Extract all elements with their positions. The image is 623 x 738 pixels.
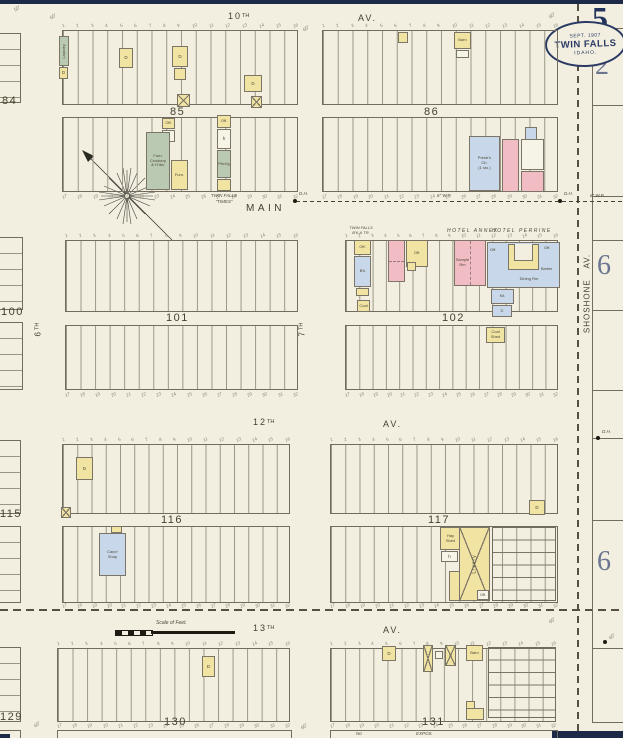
water-pipe-label: 6" W.P. xyxy=(590,193,604,199)
lot-number: 19 xyxy=(372,391,379,398)
lot-number: 23 xyxy=(153,193,160,200)
lot-number: 7 xyxy=(421,233,426,239)
lot-number: 9 xyxy=(436,23,441,29)
lot-number: 23 xyxy=(155,391,162,398)
lot-number: 25 xyxy=(186,391,193,398)
lot-number: 25 xyxy=(180,602,187,609)
lot-number: 17 xyxy=(56,722,63,729)
outbuilding xyxy=(356,288,369,296)
house-building: h xyxy=(217,129,231,149)
lot-number: 15 xyxy=(267,640,274,647)
hotel-annex-label: HOTEL ANNEX xyxy=(447,228,499,234)
lot-number: 29 xyxy=(506,193,513,200)
lot-number: 9 xyxy=(172,437,177,443)
block-115-partial-north xyxy=(0,440,21,514)
lot-number: 7 xyxy=(411,641,416,647)
barn-building: Barn xyxy=(466,645,483,661)
lot-number: 21 xyxy=(125,391,132,398)
block-partial-strip xyxy=(330,730,558,738)
dwelling-building: D xyxy=(119,48,133,68)
lot-number: 21 xyxy=(121,602,128,609)
block-100-label: 100 xyxy=(1,306,24,318)
sanborn-map-sheet: 5 2 6 6 SEPT. 1907 TWIN FALLS IDAHO. 10T… xyxy=(0,0,623,738)
lot-number: 25 xyxy=(448,602,455,609)
block-102-south xyxy=(345,325,558,390)
office-label: Off. xyxy=(544,246,550,251)
lot-number: 14 xyxy=(251,640,258,647)
carpenter-shop-building: Carp'r Shop xyxy=(99,533,126,576)
lot-number: 30 xyxy=(254,602,261,609)
lot-number: 19 xyxy=(91,602,98,609)
lot-number: 6 xyxy=(135,233,140,239)
office-label: Off. xyxy=(490,248,496,253)
lot-number: 14 xyxy=(519,436,526,443)
lot-number: 6 xyxy=(398,641,403,647)
street-12th-av: AV. xyxy=(383,419,402,429)
lot-number: 18 xyxy=(76,602,83,609)
street-6th: 6TH xyxy=(34,309,43,337)
lot-number: 25 xyxy=(455,391,462,398)
lot-number: 18 xyxy=(358,391,365,398)
lot-number: 14 xyxy=(518,22,525,29)
block-102-label: 102 xyxy=(442,312,465,324)
street-13th-av: AV. xyxy=(383,625,402,635)
hotel-light-court xyxy=(514,244,533,261)
lot-number: 27 xyxy=(216,391,223,398)
lot-number: 28 xyxy=(493,602,500,609)
lot-number: 17 xyxy=(321,193,328,200)
lot-number: 30 xyxy=(521,193,528,200)
outbuilding xyxy=(217,179,231,191)
lot-number: 2 xyxy=(335,23,340,29)
lot-number: 15 xyxy=(275,232,282,239)
lot-number: 24 xyxy=(165,602,172,609)
bank-building: B'k xyxy=(354,256,371,287)
lot-number: 19 xyxy=(92,193,99,200)
lot-number: 2 xyxy=(78,233,83,239)
lot-number: 5 xyxy=(121,233,126,239)
lot-number: 31 xyxy=(269,602,276,609)
lot-numbers-117n: 12345678910111213141516 xyxy=(330,437,558,442)
lot-number: 12 xyxy=(484,22,491,29)
lot-number: 21 xyxy=(123,193,130,200)
lot-number: 16 xyxy=(292,22,299,29)
lot-number: 18 xyxy=(337,193,344,200)
twin-falls-times-label: TWIN FALLS“TIMES” xyxy=(201,193,247,204)
lot-number: 15 xyxy=(534,640,541,647)
hydrant-label: D.H. xyxy=(564,191,573,197)
lot-number: 16 xyxy=(552,436,559,443)
lot-number: 5 xyxy=(116,437,121,443)
coal-shed: Coal Shed xyxy=(486,327,505,343)
lot-number: 1 xyxy=(61,437,66,443)
lot-number: 5 xyxy=(384,437,389,443)
lot-number: 31 xyxy=(537,602,544,609)
stall-rows-structure xyxy=(492,527,556,601)
lot-number: 32 xyxy=(552,602,559,609)
lot-number: 8 xyxy=(164,233,169,239)
lot-numbers-86n: 12345678910111213141516 xyxy=(322,23,558,28)
lot-number: 10 xyxy=(186,436,193,443)
outbuilding xyxy=(111,526,122,533)
presbyterian-church-building: Presb'n Ch. (1 sto.) xyxy=(469,136,500,191)
street-10th-av: AV. xyxy=(358,13,377,23)
dwelling-building: D xyxy=(59,67,68,79)
lot-number: 4 xyxy=(370,641,375,647)
lot-number: 16 xyxy=(292,232,299,239)
match-line-vertical xyxy=(577,4,579,734)
lot-number: 1 xyxy=(329,641,334,647)
brick-building xyxy=(502,139,519,192)
adjoining-block-edge xyxy=(592,28,593,723)
lot-number: 10 xyxy=(454,436,461,443)
dwelling-building: D xyxy=(202,656,215,677)
party-wall-line xyxy=(470,241,471,285)
lot-number: 20 xyxy=(102,722,109,729)
lot-number: 1 xyxy=(64,233,69,239)
sample-room-label: Sample Rm xyxy=(455,258,470,268)
lot-number: 6 xyxy=(133,23,138,29)
barn-building: Barn xyxy=(454,32,471,49)
hotel-annex-building: Sample Rm xyxy=(454,240,486,286)
lot-numbers-116s: 17181920212223242526272829303132 xyxy=(62,603,290,608)
lot-number: 13 xyxy=(501,22,508,29)
label-line: TWIN FALLS xyxy=(211,193,237,198)
lot-numbers-131s: 17181920212223242526272829303132 xyxy=(330,723,556,728)
lot-number: 3 xyxy=(84,641,89,647)
adjoining-block-stub xyxy=(592,390,623,391)
lot-number: 19 xyxy=(352,193,359,200)
lot-number: 17 xyxy=(64,391,71,398)
stamp-state: IDAHO. xyxy=(574,49,597,56)
dim-label: 60' xyxy=(33,721,42,730)
lot-number: 7 xyxy=(144,437,149,443)
match-line-horizontal xyxy=(0,609,623,611)
outbuilding xyxy=(466,708,484,720)
lot-number: 11 xyxy=(208,22,214,29)
lot-numbers-85s: 17181920212223242526272829303132 xyxy=(62,194,298,199)
lot-number: 27 xyxy=(210,602,217,609)
building-label: Laundry xyxy=(62,44,67,58)
lot-number: 19 xyxy=(94,391,101,398)
lot-number: 3 xyxy=(90,23,95,29)
lot-number: 26 xyxy=(201,391,208,398)
lot-number: 28 xyxy=(491,722,498,729)
lot-number: 5 xyxy=(119,23,124,29)
block-129-label: 129 xyxy=(0,711,23,723)
lot-number: 24 xyxy=(169,193,176,200)
lot-number: 10 xyxy=(184,640,191,647)
lot-number: 12 xyxy=(218,436,225,443)
dim-label: 60' xyxy=(300,723,309,732)
lot-number: 29 xyxy=(507,602,514,609)
lot-number: 18 xyxy=(79,391,86,398)
dwelling-building: D xyxy=(382,646,396,661)
lot-number: 4 xyxy=(103,437,108,443)
lot-number: 13 xyxy=(242,232,249,239)
lot-number: 17 xyxy=(61,602,68,609)
lot-number: 18 xyxy=(71,722,78,729)
block-101-north xyxy=(65,240,298,312)
adjoining-block-stub xyxy=(592,520,623,521)
lot-number: 1 xyxy=(329,437,334,443)
lot-number: 9 xyxy=(176,23,181,29)
lot-number: 19 xyxy=(359,602,366,609)
block-84-label: 84 xyxy=(2,95,17,107)
street-7th: 7TH xyxy=(298,309,307,337)
lot-number: 32 xyxy=(292,391,299,398)
lot-number: 30 xyxy=(522,602,529,609)
lot-number: 28 xyxy=(223,722,230,729)
lot-number: 4 xyxy=(104,23,109,29)
office-building: Off. xyxy=(477,590,489,600)
lot-number: 8 xyxy=(434,233,439,239)
block-100-partial-south xyxy=(0,322,23,390)
lot-number: 31 xyxy=(269,722,276,729)
lot-number: 30 xyxy=(520,722,527,729)
lot-number: 21 xyxy=(388,722,395,729)
lot-number: 5 xyxy=(395,233,400,239)
lot-number: 25 xyxy=(447,722,454,729)
lot-number: 8 xyxy=(426,437,431,443)
lot-number: 14 xyxy=(518,640,525,647)
lot-number: 19 xyxy=(359,722,366,729)
lot-number: 27 xyxy=(478,602,485,609)
lot-number: 13 xyxy=(241,22,248,29)
block-116-label: 116 xyxy=(161,514,183,526)
store-building xyxy=(388,240,405,282)
block-101-south xyxy=(65,325,298,390)
lot-number: 4 xyxy=(383,233,388,239)
lot-number: 10 xyxy=(191,22,198,29)
lot-number: 21 xyxy=(117,722,124,729)
lot-number: 28 xyxy=(490,193,497,200)
lot-number: 9 xyxy=(439,641,444,647)
hydrant-dot xyxy=(558,199,562,203)
lot-number: 16 xyxy=(550,640,557,647)
lot-number: 2 xyxy=(343,437,348,443)
lot-number: 11 xyxy=(209,232,215,239)
lot-number: 21 xyxy=(400,391,407,398)
block-84-partial xyxy=(0,33,21,103)
lot-number: 26 xyxy=(463,602,470,609)
lot-number: 16 xyxy=(284,436,291,443)
bottom-right-border-strip xyxy=(552,731,623,738)
lot-number: 24 xyxy=(432,722,439,729)
lot-number: 4 xyxy=(107,233,112,239)
lot-number: 26 xyxy=(462,722,469,729)
coal-house: Coal xyxy=(357,300,370,312)
lot-number: 16 xyxy=(284,640,291,647)
dwelling-building: D xyxy=(529,500,545,515)
lot-number: 15 xyxy=(536,436,543,443)
dim-label: 60' xyxy=(302,25,311,34)
lot-number: 7 xyxy=(141,641,146,647)
lot-number: 26 xyxy=(195,602,202,609)
dim-label: 60' xyxy=(608,633,617,642)
lot-number: 21 xyxy=(389,602,396,609)
lot-number: 19 xyxy=(86,722,93,729)
lot-numbers-131n: 12345678910111213141516 xyxy=(330,641,556,646)
lot-number: 27 xyxy=(208,722,215,729)
lot-number: 23 xyxy=(147,722,154,729)
lot-number: 15 xyxy=(275,22,282,29)
shed-building xyxy=(177,94,190,107)
lot-number: 32 xyxy=(552,193,559,200)
scale-label: Scale of Feet. xyxy=(156,620,187,626)
lot-number: 18 xyxy=(344,722,351,729)
outbuilding xyxy=(407,262,416,271)
adjoining-block-stub xyxy=(592,310,623,311)
lot-number: 3 xyxy=(92,233,97,239)
lot-number: 6 xyxy=(398,437,403,443)
lot-number: 20 xyxy=(110,391,117,398)
laundry-building: Laundry xyxy=(59,36,69,66)
lot-numbers-130n: 12345678910111213141516 xyxy=(57,641,290,646)
lot-number: 9 xyxy=(178,233,183,239)
block-116-north xyxy=(62,444,290,514)
block-86-label: 86 xyxy=(424,106,439,118)
lot-number: 3 xyxy=(356,641,361,647)
lot-number: 6 xyxy=(393,23,398,29)
lot-number: 32 xyxy=(284,722,291,729)
hydrant-label: D.H. xyxy=(299,191,308,197)
lot-number: 12 xyxy=(224,22,231,29)
hotel-perrine-building: Off. Off. Dining Rm Barber xyxy=(487,242,560,288)
lot-number: 28 xyxy=(231,391,238,398)
lot-number: 22 xyxy=(398,193,405,200)
lot-number: 23 xyxy=(417,722,424,729)
lot-number: 1 xyxy=(61,23,66,29)
lot-number: 6 xyxy=(127,641,132,647)
adjoining-block-stub xyxy=(592,105,623,106)
street-13th: 13TH xyxy=(253,623,274,633)
stall-rows-structure xyxy=(488,647,556,718)
block-115-label: 115 xyxy=(0,508,22,520)
lot-number: 13 xyxy=(234,640,241,647)
lot-number: 23 xyxy=(418,602,425,609)
lot-number: 23 xyxy=(413,193,420,200)
lot-number: 4 xyxy=(371,437,376,443)
lot-number: 20 xyxy=(107,193,114,200)
shed-building xyxy=(423,645,433,672)
lot-number: 22 xyxy=(403,602,410,609)
house-building: h xyxy=(441,551,458,562)
dim-label: 60' xyxy=(548,617,557,626)
lot-number: 1 xyxy=(56,641,61,647)
hotel-rear-building: D xyxy=(492,305,512,317)
furniture-store: Furn. xyxy=(171,160,188,190)
lot-number: 20 xyxy=(374,602,381,609)
lot-numbers-101n: 12345678910111213141516 xyxy=(65,233,298,238)
lot-number: 25 xyxy=(184,193,191,200)
hydrant-label: D.H. xyxy=(602,429,611,435)
lot-number: 8 xyxy=(156,641,161,647)
office-building: Off. xyxy=(354,240,371,255)
block-85-label: 85 xyxy=(170,106,185,118)
lot-number: 11 xyxy=(202,436,208,443)
street-shoshone-av: SHOSHONE AV. xyxy=(583,244,592,344)
block-117-north xyxy=(330,444,558,514)
top-border-strip xyxy=(0,0,623,4)
lot-number: 5 xyxy=(113,641,118,647)
lot-number: 20 xyxy=(373,722,380,729)
lot-number: 4 xyxy=(364,23,369,29)
hydrant-dot xyxy=(603,640,607,644)
lot-number: 31 xyxy=(538,391,545,398)
dining-room-label: Dining Rm xyxy=(512,277,546,282)
lot-number: 3 xyxy=(357,437,362,443)
scale-bar-segments xyxy=(115,630,153,636)
lot-number: 15 xyxy=(268,436,275,443)
hotel-kitchen-building: Kit. xyxy=(491,289,514,304)
lot-number: 31 xyxy=(277,391,284,398)
lot-number: 3 xyxy=(89,437,94,443)
lot-number: 26 xyxy=(193,722,200,729)
no-exposure-note: No xyxy=(356,731,362,737)
lot-number: 18 xyxy=(77,193,84,200)
lot-number: 30 xyxy=(261,193,268,200)
dwelling-building: D xyxy=(244,75,262,92)
lot-number: 32 xyxy=(552,391,559,398)
lot-number: 22 xyxy=(132,722,139,729)
lot-number: 28 xyxy=(497,391,504,398)
lot-number: 26 xyxy=(469,391,476,398)
lot-number: 28 xyxy=(225,602,232,609)
lot-number: 10 xyxy=(451,22,458,29)
dim-label: 50' xyxy=(13,5,22,14)
party-wall-line xyxy=(389,261,404,262)
office-building: Off. xyxy=(217,115,231,128)
lot-number: 30 xyxy=(254,722,261,729)
lot-number: 25 xyxy=(178,722,185,729)
lot-number: 9 xyxy=(440,437,445,443)
dwelling-building: D xyxy=(76,457,93,480)
lot-number: 7 xyxy=(148,23,153,29)
scale-bar-line xyxy=(151,631,235,634)
dwelling-building: D xyxy=(172,46,188,67)
lot-number: 17 xyxy=(61,193,68,200)
shed-building xyxy=(61,507,71,518)
shed-building xyxy=(445,645,456,666)
lot-number: 14 xyxy=(258,22,265,29)
lot-number: 18 xyxy=(344,602,351,609)
lot-numbers-101s: 17181920212223242526272829303132 xyxy=(65,392,298,397)
hay-shed-building: Hay Shed xyxy=(440,527,461,550)
adjoining-block-stub xyxy=(592,240,623,241)
lot-number: 17 xyxy=(329,722,336,729)
lot-number: 2 xyxy=(343,641,348,647)
lot-number: 22 xyxy=(403,722,410,729)
block-86-north xyxy=(322,30,558,105)
lot-number: 26 xyxy=(460,193,467,200)
no-exposure-note: EXPOS. xyxy=(416,731,433,737)
frame-building xyxy=(521,139,544,170)
lot-numbers-86s: 17181920212223242526272829303132 xyxy=(322,194,558,199)
block-100-partial-north xyxy=(0,237,23,310)
dim-label: 60' xyxy=(548,12,557,21)
lot-number: 32 xyxy=(284,602,291,609)
outbuilding xyxy=(398,32,408,43)
lot-number: 11 xyxy=(470,436,476,443)
shed-building xyxy=(251,96,262,108)
lot-number: 12 xyxy=(217,640,224,647)
street-main: MAIN xyxy=(246,203,285,214)
street-12th: 12TH xyxy=(253,417,274,427)
label-line: B'K & TR. xyxy=(352,230,369,235)
outbuilding xyxy=(456,50,469,58)
lot-number: 22 xyxy=(138,193,145,200)
